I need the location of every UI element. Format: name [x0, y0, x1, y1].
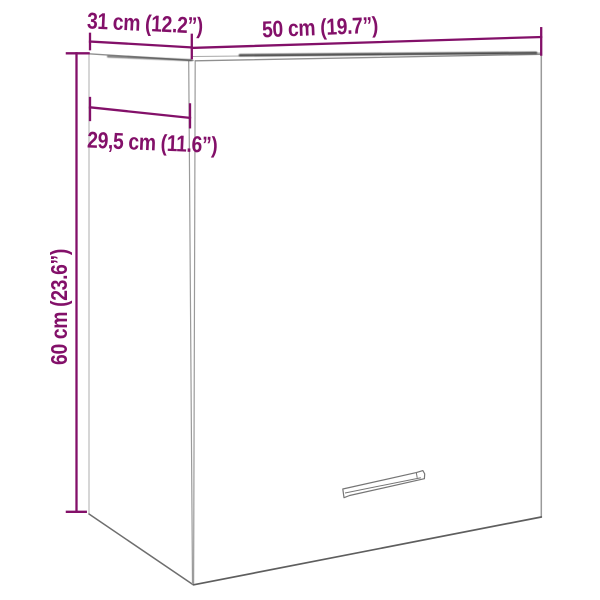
dim-inner-depth-line — [90, 107, 190, 118]
dimension-lines — [67, 28, 541, 512]
dimension-diagram: 31 cm (12.2”) 50 cm (19.7”) 29,5 cm (11.… — [0, 0, 600, 600]
dim-label-inner-depth: 29,5 cm (11.6”) — [87, 126, 206, 159]
cabinet-door-bottom-edge — [194, 517, 542, 585]
dim-label-height: 60 cm (23.6”) — [45, 248, 73, 366]
door-handle-body — [343, 471, 425, 498]
door-handle — [343, 471, 425, 498]
dim-label-top-width: 50 cm (19.7”) — [261, 11, 380, 44]
cabinet-line-drawing — [0, 0, 600, 600]
dim-label-top-depth: 31 cm (12.2”) — [86, 6, 205, 39]
dim-top-depth-line — [90, 42, 192, 48]
cabinet-side-bottom-edge — [89, 514, 193, 585]
